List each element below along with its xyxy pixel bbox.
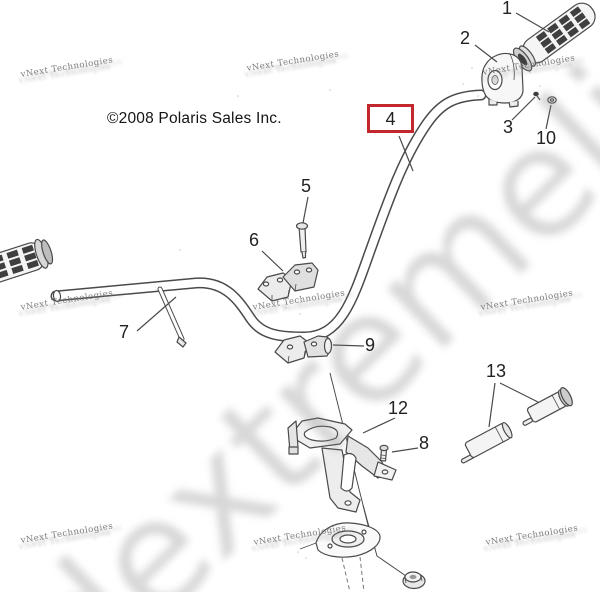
selected-part-highlight: 4 bbox=[367, 104, 414, 133]
callout-2[interactable]: 2 bbox=[460, 29, 470, 47]
plug-13a bbox=[455, 421, 514, 463]
callout-13[interactable]: 13 bbox=[486, 362, 506, 380]
callout-5[interactable]: 5 bbox=[301, 177, 311, 195]
callout-1[interactable]: 1 bbox=[502, 0, 512, 17]
parts-diagram-page: adextremelife vNext Technologies vNext T… bbox=[0, 0, 600, 592]
callout-4[interactable]: 4 bbox=[385, 110, 395, 128]
callout-7[interactable]: 7 bbox=[119, 323, 129, 341]
callout-12[interactable]: 12 bbox=[388, 399, 408, 417]
copyright-text: ©2008 Polaris Sales Inc. bbox=[107, 110, 282, 128]
washer-10 bbox=[548, 97, 556, 103]
plug-13b bbox=[517, 386, 575, 429]
bracket-12 bbox=[288, 418, 396, 512]
bolt-7 bbox=[160, 289, 186, 347]
clamp-9 bbox=[275, 336, 332, 363]
flange-nut bbox=[403, 572, 425, 589]
callout-10[interactable]: 10 bbox=[536, 129, 556, 147]
grip-left bbox=[0, 236, 56, 295]
screw-3 bbox=[533, 92, 540, 100]
bolt-8 bbox=[380, 445, 388, 461]
callout-9[interactable]: 9 bbox=[365, 336, 375, 354]
speckle-noise bbox=[179, 67, 541, 559]
callout-3[interactable]: 3 bbox=[503, 118, 513, 136]
callout-6[interactable]: 6 bbox=[249, 231, 259, 249]
callout-8[interactable]: 8 bbox=[419, 434, 429, 452]
bolt-5 bbox=[297, 223, 308, 258]
